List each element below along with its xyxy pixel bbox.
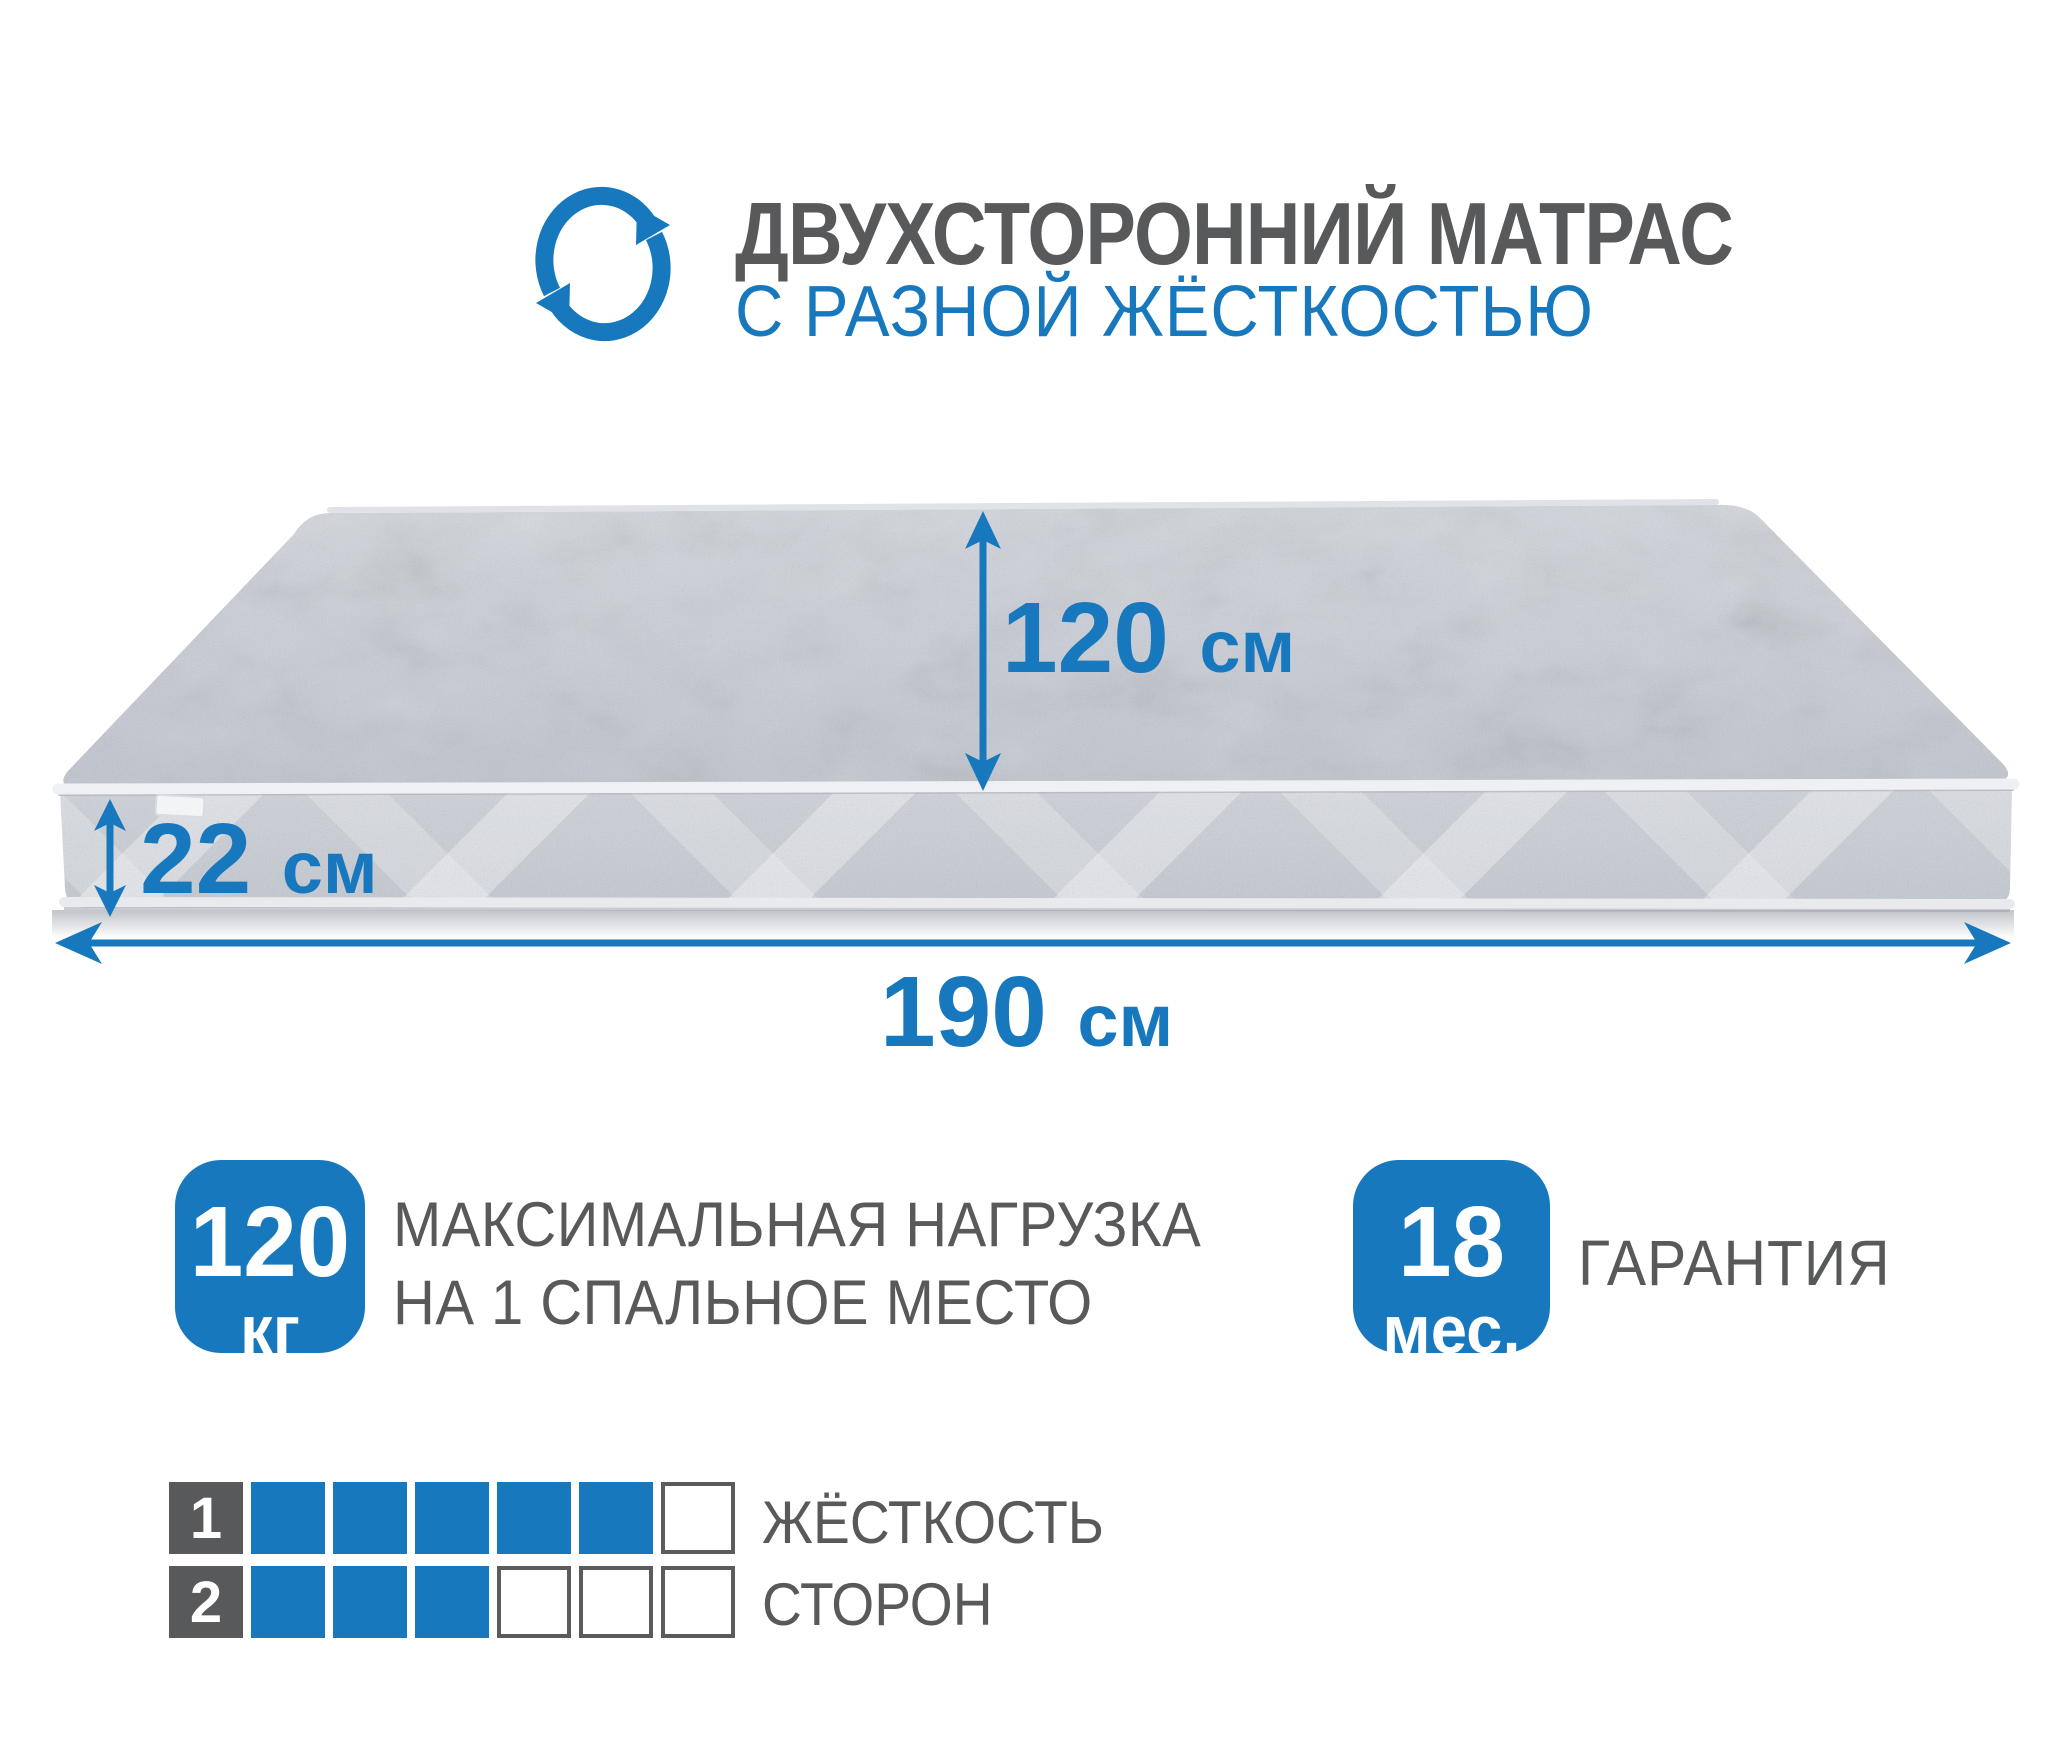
max-load-caption-line2: НА 1 СПАЛЬНОЕ МЕСТО — [393, 1264, 1201, 1342]
hardness-row-1: 1 — [169, 1482, 735, 1554]
hardness-caption-line2: СТОРОН — [762, 1564, 1104, 1646]
hardness-cell-filled — [251, 1482, 325, 1554]
hardness-row-2-cells — [251, 1566, 735, 1638]
hardness-cell-empty — [579, 1566, 653, 1638]
hardness-cell-empty — [497, 1566, 571, 1638]
warranty-unit: мес. — [1357, 1296, 1546, 1364]
hardness-cell-filled — [579, 1482, 653, 1554]
hardness-cell-filled — [251, 1566, 325, 1638]
hardness-cell-filled — [497, 1482, 571, 1554]
max-load-badge: 120 кг — [175, 1160, 365, 1353]
piping-top-front — [58, 784, 2014, 789]
hardness-row-1-cells — [251, 1482, 735, 1554]
hardness-caption-line1: ЖЁСТКОСТЬ — [762, 1482, 1104, 1564]
warranty-value: 18 — [1357, 1192, 1546, 1292]
mattress-shadow — [52, 910, 2014, 938]
max-load-caption: МАКСИМАЛЬНАЯ НАГРУЗКА НА 1 СПАЛЬНОЕ МЕСТ… — [393, 1186, 1201, 1342]
warranty-badge: 18 мес. — [1353, 1160, 1550, 1353]
hardness-row-2: 2 — [169, 1566, 735, 1638]
hardness-cell-empty — [661, 1482, 735, 1554]
dimension-length-label: 190 см — [880, 956, 1173, 1068]
warranty-caption: ГАРАНТИЯ — [1578, 1226, 1891, 1300]
hardness-cell-filled — [333, 1566, 407, 1638]
max-load-value: 120 — [179, 1192, 361, 1292]
infographic-canvas: ДВУХСТОРОННИЙ МАТРАС С РАЗНОЙ ЖЁСТКОСТЬЮ — [0, 0, 2048, 1757]
hardness-caption: ЖЁСТКОСТЬ СТОРОН — [762, 1482, 1104, 1646]
hardness-row-2-label: 2 — [169, 1566, 243, 1638]
hardness-cell-filled — [415, 1482, 489, 1554]
max-load-unit: кг — [179, 1296, 361, 1364]
hardness-cell-empty — [661, 1566, 735, 1638]
hardness-row-1-label: 1 — [169, 1482, 243, 1554]
hardness-cell-filled — [333, 1482, 407, 1554]
hardness-cell-filled — [415, 1566, 489, 1638]
max-load-caption-line1: МАКСИМАЛЬНАЯ НАГРУЗКА — [393, 1186, 1201, 1264]
